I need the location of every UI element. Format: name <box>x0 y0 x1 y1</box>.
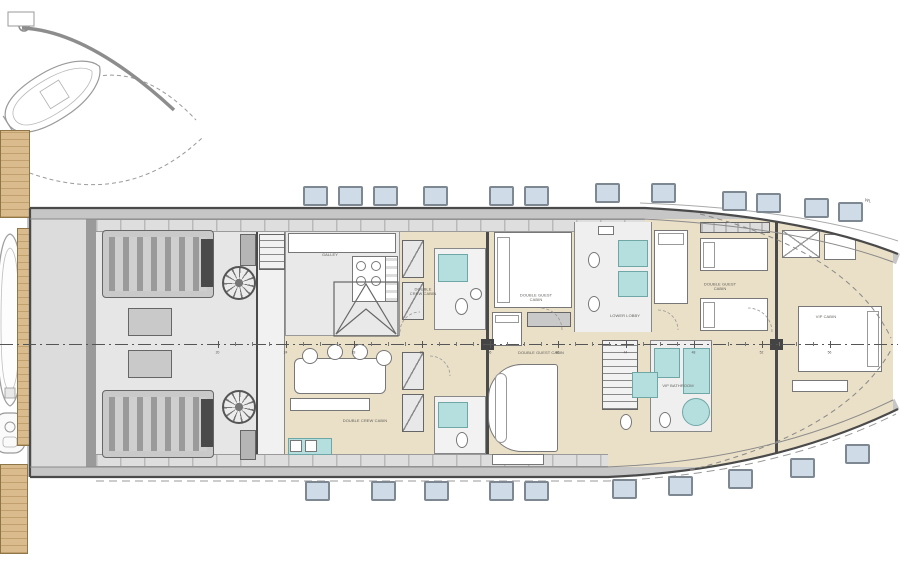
frame-tick-minor <box>643 342 644 346</box>
frame-tick-minor <box>507 342 508 346</box>
frame-tick-minor <box>660 342 661 346</box>
porthole-bottom <box>790 458 815 478</box>
porthole-top <box>595 183 620 203</box>
frame-tick-minor <box>320 342 321 346</box>
centerline <box>0 344 898 345</box>
frame-number: 36 <box>488 351 492 355</box>
vip-cabin-label: VIP CABIN <box>805 315 847 320</box>
frame-tick-minor <box>371 342 372 346</box>
porthole-top <box>524 186 549 206</box>
porthole-top <box>838 202 863 222</box>
frame-tick <box>762 341 763 348</box>
frame-tick-minor <box>269 342 270 346</box>
frame-tick-minor <box>388 342 389 346</box>
porthole-bottom <box>424 481 449 501</box>
frame-number: 24 <box>284 351 288 355</box>
guest-cabin-upper-right-label: DOUBLE GUEST CABIN <box>702 282 737 292</box>
porthole-top <box>303 186 328 206</box>
porthole-top <box>373 186 398 206</box>
porthole-top <box>651 183 676 203</box>
hull-outline-overlay <box>0 0 900 564</box>
crew-cabin-lower-label: DOUBLE CREW CABIN <box>334 419 396 424</box>
frame-tick-minor <box>813 342 814 346</box>
crew-cabin-upper-label: DOUBLE CREW CABIN <box>408 287 438 297</box>
frame-tick-minor <box>745 342 746 346</box>
frame-tick-minor <box>541 342 542 346</box>
yacht-lower-deck-plan: 20242832364044485256 GALLEY DOUBLE CREW … <box>0 0 900 564</box>
frame-tick-minor <box>592 342 593 346</box>
porthole-top <box>423 186 448 206</box>
porthole-bottom <box>612 479 637 499</box>
frame-tick <box>490 341 491 348</box>
frame-number: 52 <box>760 351 764 355</box>
porthole-bottom <box>371 481 396 501</box>
porthole-bottom <box>668 476 693 496</box>
porthole-top <box>489 186 514 206</box>
lower-lobby-label: LOWER LOBBY <box>603 314 646 319</box>
frame-tick-minor <box>473 342 474 346</box>
frame-tick-minor <box>711 342 712 346</box>
porthole-top <box>804 198 829 218</box>
frame-number: 20 <box>216 351 220 355</box>
frame-tick-minor <box>524 342 525 346</box>
frame-tick-minor <box>235 342 236 346</box>
frame-tick <box>830 341 831 348</box>
porthole-bottom <box>845 444 870 464</box>
porthole-top <box>338 186 363 206</box>
frame-tick <box>286 341 287 348</box>
frame-tick-minor <box>796 342 797 346</box>
porthole-bottom <box>489 481 514 501</box>
frame-tick-minor <box>439 342 440 346</box>
porthole-top <box>722 191 747 211</box>
frame-tick-minor <box>728 342 729 346</box>
frame-tick-minor <box>575 342 576 346</box>
frame-tick-minor <box>779 342 780 346</box>
frame-tick-minor <box>303 342 304 346</box>
porthole-bottom <box>524 481 549 501</box>
frame-tick-minor <box>677 342 678 346</box>
porthole-bottom <box>728 469 753 489</box>
frame-tick <box>422 341 423 348</box>
frame-tick <box>558 341 559 348</box>
vip-bathroom-label: VIP BATHROOM <box>652 384 703 389</box>
frame-number: 28 <box>352 351 356 355</box>
frame-tick <box>218 341 219 348</box>
frame-tick <box>354 341 355 348</box>
frame-number: 48 <box>692 351 696 355</box>
galley-label: GALLEY <box>310 253 350 258</box>
frame-tick-minor <box>252 342 253 346</box>
hull-inner-top <box>30 219 893 262</box>
frame-tick <box>694 341 695 348</box>
frame-tick-minor <box>405 342 406 346</box>
galley-stair-chevrons <box>334 282 398 336</box>
porthole-bottom <box>305 481 330 501</box>
porthole-top <box>756 193 781 213</box>
guest-cabin-lower-label: DOUBLE GUEST CABIN <box>510 351 572 356</box>
guest-cabin-upper-left-label: DOUBLE GUEST CABIN <box>517 293 555 303</box>
frame-number: 56 <box>828 351 832 355</box>
frame-tick <box>626 341 627 348</box>
frame-tick-minor <box>337 342 338 346</box>
frame-tick-minor <box>456 342 457 346</box>
frame-tick-minor <box>609 342 610 346</box>
frame-number: 32 <box>420 351 424 355</box>
frame-number: 44 <box>624 351 628 355</box>
